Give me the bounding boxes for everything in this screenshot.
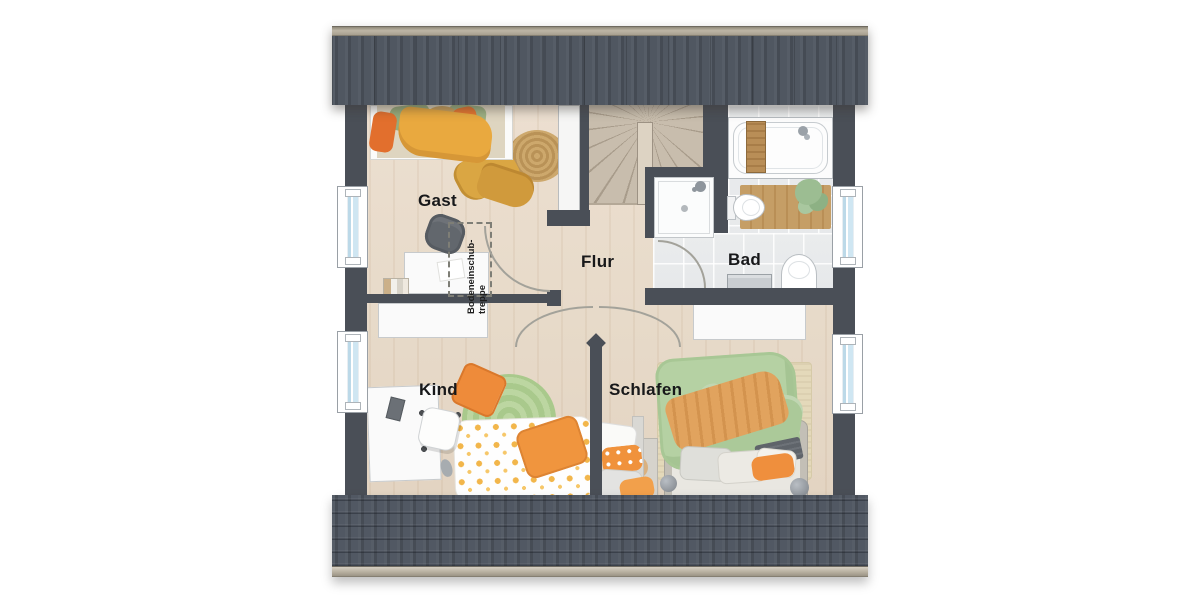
toilet-bowl [742,199,760,216]
room-label-schlafen: Schlafen [609,381,682,398]
bathtub-faucet [798,126,808,136]
kind-bed [452,414,644,500]
window-handle [840,403,856,411]
shower-drain [681,205,688,212]
kind-schlafen-wall [590,342,602,497]
window-left-kind [337,331,368,413]
room-label-gast: Gast [418,192,457,209]
window-right-bad [832,186,863,268]
window-handle [345,257,361,265]
room-label-flur: Flur [581,253,614,270]
exterior-wall-left [345,105,367,495]
roof-top [332,26,868,105]
window-glass [842,192,854,262]
window-left-gast [337,186,368,268]
roof-top-gutter [332,26,868,36]
roof-top-sheeting [332,36,868,105]
shower-head [695,181,706,192]
window-handle [345,189,361,197]
window-handle [345,334,361,342]
window-glass [347,192,359,262]
room-label-kind: Kind [419,381,458,398]
mid-wall-left-jamb [547,290,561,306]
attic-hatch-label: Bodeneinschub- treppe [466,224,496,314]
bidet-bowl [788,261,810,279]
window-handle [840,257,856,265]
attic-hatch-label-line1: Bodeneinschub- [466,240,477,314]
roof-bottom-sheeting [332,495,868,566]
stair-partition-wall [580,105,589,212]
window-handle [840,189,856,197]
bathtub-caddy [746,121,766,173]
floor-plan: Bodeneinschub- treppe [0,0,1200,600]
attic-hatch-label-line2: treppe [477,285,488,314]
stair-partition-white [558,105,580,212]
bath-bottom-wall [645,288,855,305]
schlafen-wardrobe [693,303,806,340]
window-handle [840,337,856,345]
window-handle [345,402,361,410]
roof-bottom-gutter [332,566,868,577]
window-glass [347,337,359,407]
gast-flur-wall [547,210,590,226]
room-label-bad: Bad [728,251,761,268]
shower-wall-left [645,167,654,238]
roof-bottom [332,495,868,577]
schlafen-bed [660,355,812,500]
window-glass [842,340,854,408]
window-right-schlafen [832,334,863,414]
schlafen-bed-knob-left [660,475,677,492]
